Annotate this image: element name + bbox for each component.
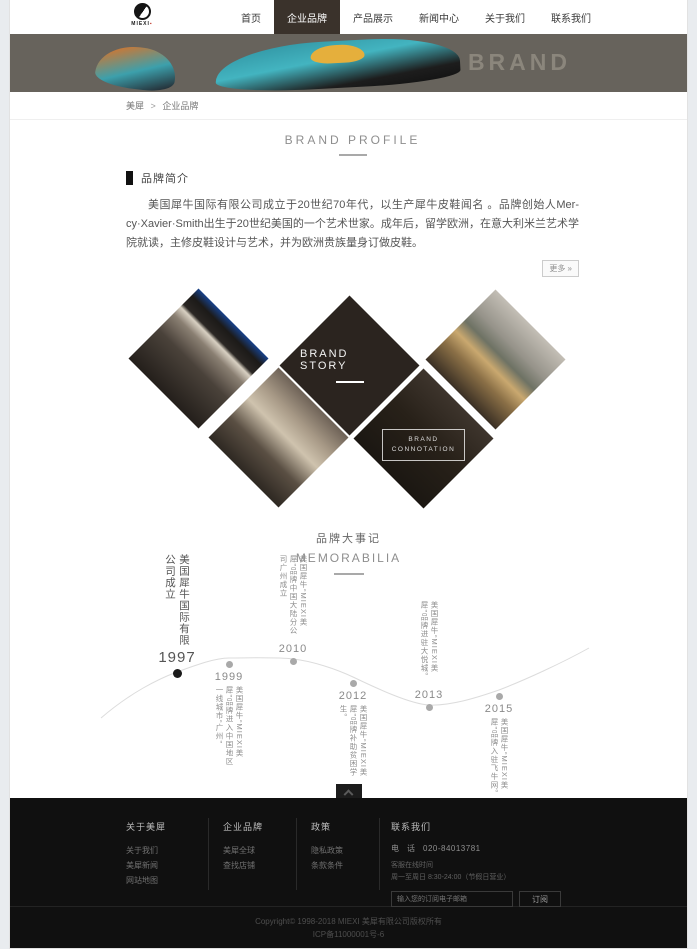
- footer-phone-row: 电 话020-84013781: [391, 843, 579, 854]
- copyright-line1: Copyright© 1998-2018 MIEXI 美犀有限公司版权所有: [10, 915, 687, 928]
- timeline-event-1997: 美国犀牛国际有限公司成立 1997: [135, 554, 219, 678]
- service-hours-value: 周一至周日 8:30-24:00（节假日营业）: [391, 872, 579, 884]
- timeline-event-text: 美国犀牛“MIEXI美犀”品牌进入中国地区一线城市“广州”: [214, 686, 244, 771]
- footer-contact: 联系我们 电 话020-84013781 客服在线时间 周一至周日 8:30-2…: [391, 820, 579, 907]
- page: MIEXI▪ 首页 企业品牌 产品展示 新闻中心 关于我们 联系我们 BRAND…: [9, 0, 688, 949]
- subsection-heading: 品牌简介: [126, 170, 579, 186]
- brand-story-title: BRAND STORY: [300, 348, 399, 372]
- timeline-event-year: 2013: [415, 689, 443, 701]
- phone-number: 020-84013781: [423, 844, 481, 853]
- brand-profile-section: BRAND PROFILE 品牌简介 美国犀牛国际有限公司成立于20世纪70年代…: [10, 120, 687, 283]
- back-to-top-button[interactable]: [336, 784, 362, 798]
- logo[interactable]: MIEXI▪: [122, 3, 162, 27]
- subscribe-button[interactable]: 订阅: [519, 891, 561, 907]
- brand-story-underline: [336, 381, 364, 383]
- memorabilia-heading: 品牌大事记 MEMORABILIA: [10, 520, 687, 575]
- timeline-event-text: 美国犀牛“MIEXI美犀”品牌补助贫困学生。: [338, 705, 368, 790]
- brand-story-gallery: BRAND STORY BRAND CONNOTATION: [10, 283, 687, 520]
- timeline-event-2010: 美国犀牛“MIEXI美犀”品牌中国大陆分公司广州成立 2010: [251, 555, 335, 665]
- timeline-dot: [226, 661, 233, 668]
- footer-column-brand: 企业品牌 美犀全球 查找店铺: [223, 820, 263, 873]
- footer-link-sitemap[interactable]: 网站地图: [126, 873, 166, 888]
- timeline-event-2012: 2012 美国犀牛“MIEXI美犀”品牌补助贫困学生。: [311, 680, 395, 790]
- timeline: 美国犀牛国际有限公司成立 1997 1999 美国犀牛“MIEXI美犀”品牌进入…: [10, 575, 687, 788]
- memorabilia-title-en: MEMORABILIA: [10, 551, 687, 565]
- phone-label: 电 话: [391, 844, 415, 853]
- brand-connotation-label: BRAND CONNOTATION: [382, 429, 466, 461]
- subsection-title: 品牌简介: [141, 170, 189, 186]
- timeline-dot: [496, 693, 503, 700]
- footer-divider: [379, 818, 380, 890]
- footer-wrap: 关于美犀 关于我们 美犀新闻 网站地图 企业品牌 美犀全球 查找店铺 政策 隐私…: [10, 798, 687, 948]
- nav-item-brand[interactable]: 企业品牌: [274, 0, 340, 34]
- breadcrumb-current: 企业品牌: [162, 101, 198, 111]
- section-title-underline: [339, 154, 367, 156]
- nav-item-home[interactable]: 首页: [228, 0, 274, 34]
- banner: BRAND: [10, 34, 687, 92]
- heading-block-marker: [126, 171, 133, 185]
- logo-text: MIEXI▪: [122, 21, 162, 27]
- footer-link-global[interactable]: 美犀全球: [223, 843, 263, 858]
- timeline-event-1999: 1999 美国犀牛“MIEXI美犀”品牌进入中国地区一线城市“广州”: [187, 661, 271, 771]
- main-nav: 首页 企业品牌 产品展示 新闻中心 关于我们 联系我们: [228, 0, 604, 34]
- nav-item-about[interactable]: 关于我们: [472, 0, 538, 34]
- header: MIEXI▪ 首页 企业品牌 产品展示 新闻中心 关于我们 联系我们: [10, 0, 687, 34]
- footer-column-title: 关于美犀: [126, 820, 166, 833]
- breadcrumb: 美犀 > 企业品牌: [10, 92, 687, 120]
- sneaker-patch: [310, 44, 365, 65]
- timeline-event-2015: 2015 美国犀牛“MIEXI美犀”品牌入驻飞牛网。: [457, 693, 541, 803]
- timeline-event-text: 美国犀牛“MIEXI美犀”品牌中国大陆分公司广州成立: [278, 555, 308, 640]
- footer: 关于美犀 关于我们 美犀新闻 网站地图 企业品牌 美犀全球 查找店铺 政策 隐私…: [10, 798, 687, 906]
- copyright-line2: ICP备11000001号-6: [10, 928, 687, 941]
- sneaker-image-left: [94, 42, 179, 92]
- footer-column-title: 企业品牌: [223, 820, 263, 833]
- timeline-dot: [173, 669, 182, 678]
- rhino-logo-icon: [134, 3, 151, 20]
- breadcrumb-separator: >: [151, 101, 156, 111]
- footer-divider: [208, 818, 209, 890]
- footer-link-terms[interactable]: 条款条件: [311, 858, 343, 873]
- timeline-event-year: 1999: [215, 671, 243, 683]
- sneaker-image-center: [214, 35, 461, 92]
- footer-contact-title: 联系我们: [391, 820, 579, 833]
- footer-divider: [296, 818, 297, 890]
- footer-column-about: 关于美犀 关于我们 美犀新闻 网站地图: [126, 820, 166, 888]
- timeline-event-text: 美国犀牛国际有限公司成立: [163, 554, 191, 646]
- footer-link-stores[interactable]: 查找店铺: [223, 858, 263, 873]
- service-hours-label: 客服在线时间: [391, 860, 579, 872]
- timeline-event-text: 美国犀牛“MIEXI美犀”品牌入驻飞牛网。: [489, 718, 509, 803]
- timeline-dot: [350, 680, 357, 687]
- nav-item-news[interactable]: 新闻中心: [406, 0, 472, 34]
- subscribe-row: 订阅: [391, 891, 579, 907]
- footer-link-about-us[interactable]: 关于我们: [126, 843, 166, 858]
- nav-item-products[interactable]: 产品展示: [340, 0, 406, 34]
- timeline-dot: [426, 704, 433, 711]
- nav-item-contact[interactable]: 联系我们: [538, 0, 604, 34]
- timeline-event-text: 美国犀牛“MIEXI美犀”品牌进驻大悦城。: [419, 601, 439, 686]
- timeline-event-year: 2015: [485, 703, 513, 715]
- memorabilia-title-cn: 品牌大事记: [10, 530, 687, 546]
- timeline-event-year: 2010: [279, 643, 307, 655]
- footer-column-title: 政策: [311, 820, 343, 833]
- banner-title: BRAND: [468, 49, 571, 76]
- breadcrumb-home-link[interactable]: 美犀: [126, 101, 144, 111]
- brand-intro-paragraph: 美国犀牛国际有限公司成立于20世纪70年代，以生产犀牛皮鞋闻名 。品牌创始人Me…: [126, 196, 579, 253]
- timeline-dot: [290, 658, 297, 665]
- footer-link-news[interactable]: 美犀新闻: [126, 858, 166, 873]
- footer-column-policy: 政策 隐私政策 条款条件: [311, 820, 343, 873]
- footer-link-privacy[interactable]: 隐私政策: [311, 843, 343, 858]
- copyright-bar: Copyright© 1998-2018 MIEXI 美犀有限公司版权所有 IC…: [10, 906, 687, 948]
- timeline-event-year: 2012: [339, 690, 367, 702]
- more-button[interactable]: 更多 »: [542, 260, 579, 277]
- subscribe-email-input[interactable]: [391, 891, 513, 907]
- section-title-brand-profile: BRAND PROFILE: [126, 133, 579, 147]
